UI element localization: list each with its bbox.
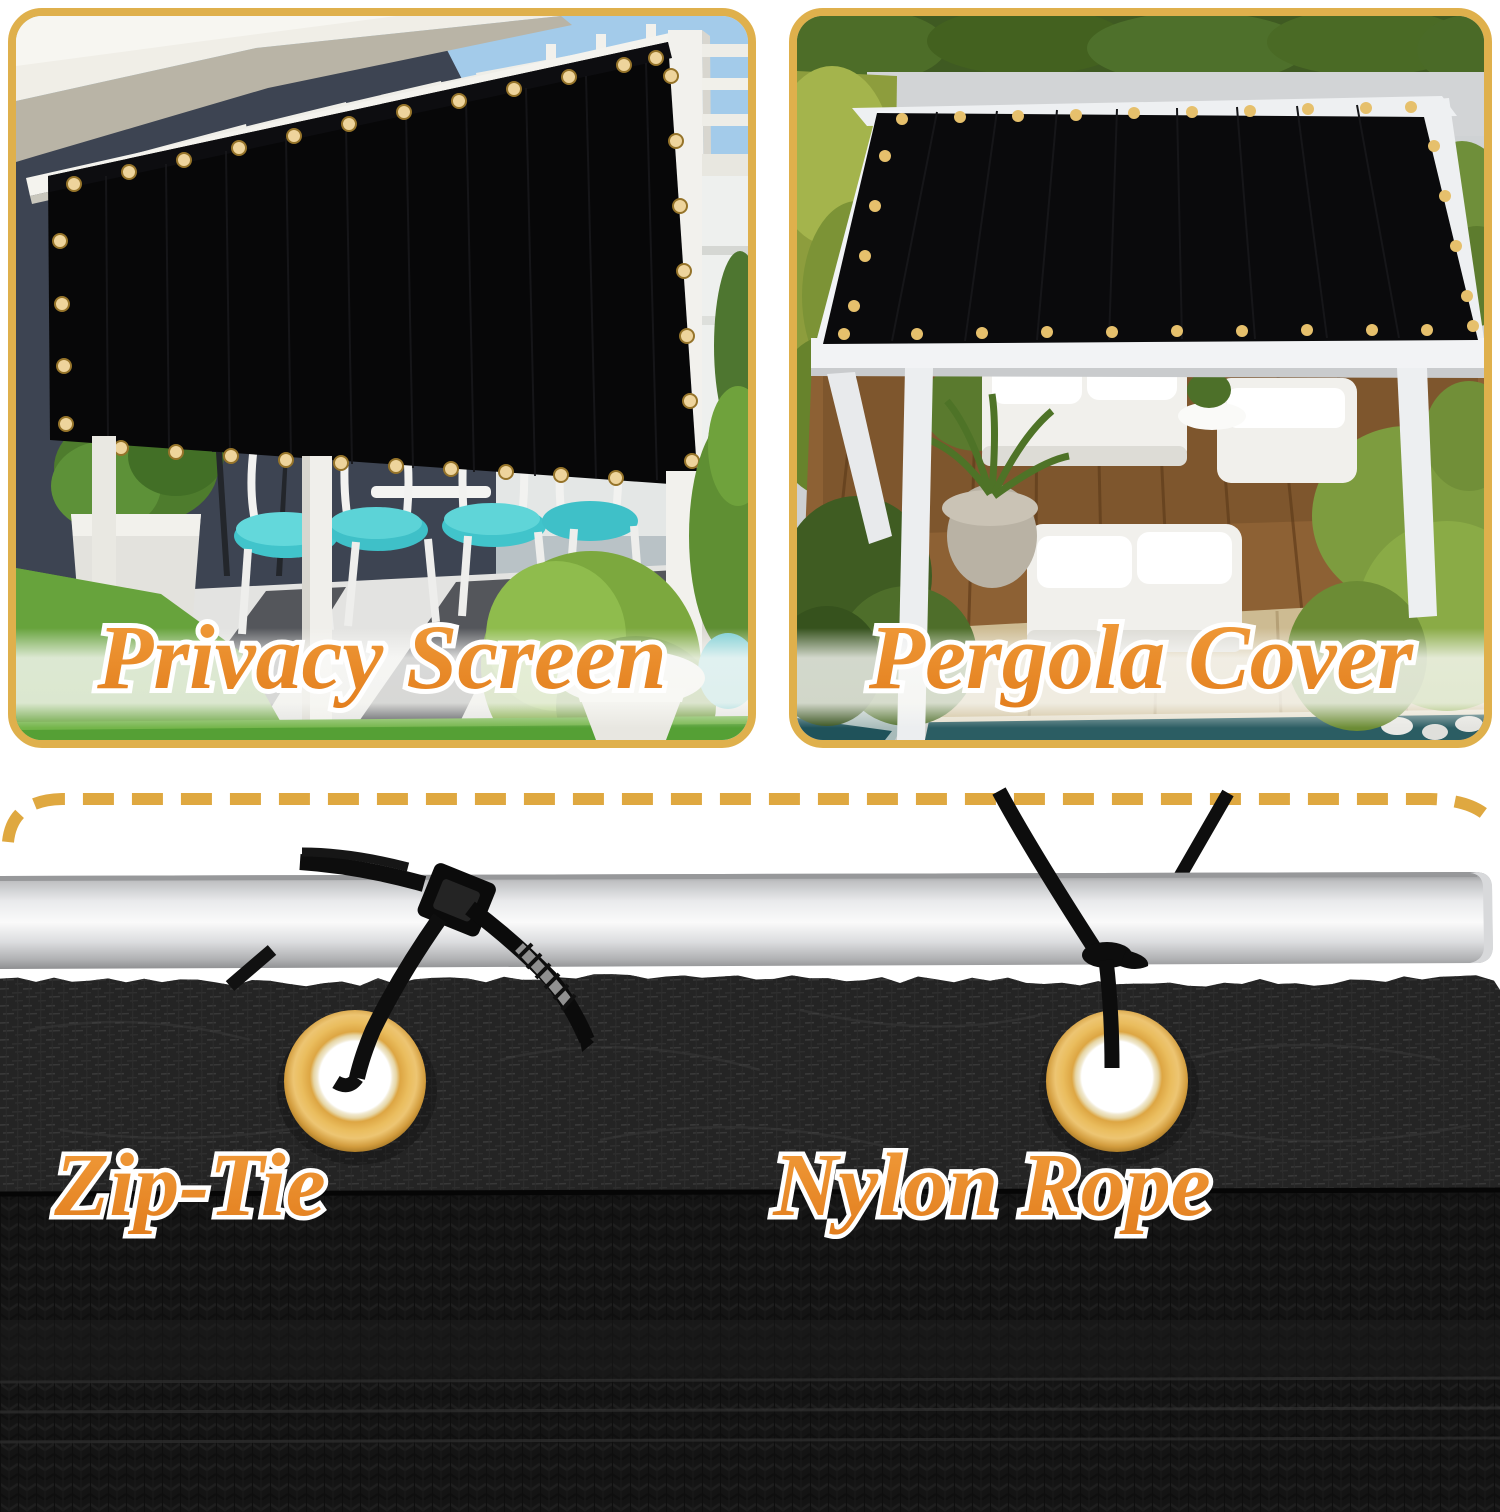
svg-text:Privacy Screen: Privacy Screen <box>96 606 667 708</box>
svg-text:Nylon Rope: Nylon Rope <box>772 1136 1210 1235</box>
svg-text:Zip-Tie: Zip-Tie <box>53 1136 326 1235</box>
svg-text:Pergola Cover: Pergola Cover <box>868 606 1414 708</box>
